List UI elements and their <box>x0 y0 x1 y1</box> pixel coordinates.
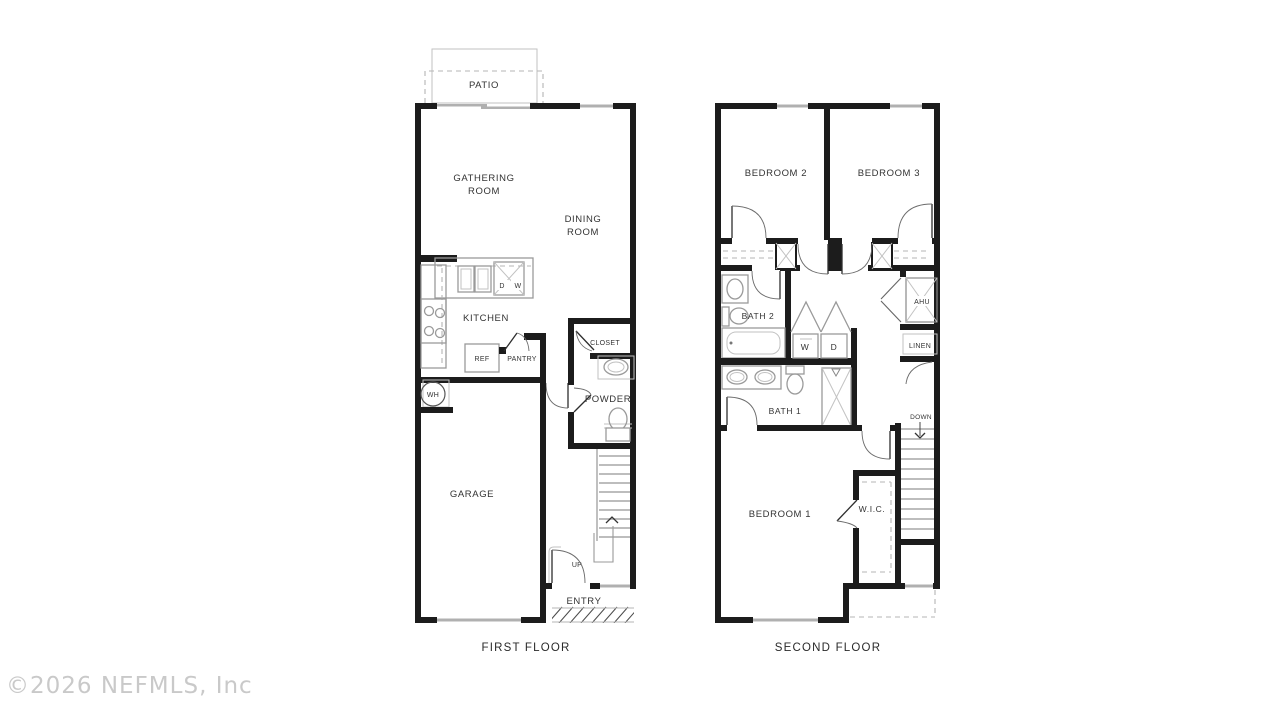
floorplan-image: PATIO GATHERING ROOM DINING ROOM <box>0 0 1280 720</box>
bath1-area: BATH 1 <box>721 366 901 431</box>
pantry: PANTRY <box>499 333 546 363</box>
refrigerator: REF <box>465 344 499 372</box>
patio-label: PATIO <box>469 80 499 91</box>
first-floor-plan: PATIO GATHERING ROOM DINING ROOM <box>415 49 639 654</box>
entry-sidelite-window <box>600 585 630 588</box>
dining-room-label: DINING <box>565 214 602 225</box>
powder-label: POWDER <box>585 394 631 405</box>
bedroom2-label: BEDROOM 2 <box>745 168 807 179</box>
powder-room-area: CLOSET POWDER <box>568 318 636 449</box>
second-floor-plan: BEDROOM 2 BEDROOM 3 <box>715 103 940 654</box>
bath1-label: BATH 1 <box>769 406 802 416</box>
floorplan-page: PATIO GATHERING ROOM DINING ROOM <box>0 0 1280 720</box>
kitchen-area: D W KITCHEN REF PANTRY <box>415 255 574 408</box>
dining-room-label-2: ROOM <box>567 227 599 238</box>
bedroom2-window <box>777 105 808 108</box>
kitchen-sink <box>458 266 474 292</box>
powder-toilet <box>604 408 632 441</box>
ref-label: REF <box>475 356 490 363</box>
gathering-room-label: GATHERING <box>453 173 514 184</box>
watermark: ©2026 NEFMLS, Inc <box>6 673 253 699</box>
garage-label: GARAGE <box>450 489 494 500</box>
garage-door <box>437 619 521 622</box>
hall-door-arc <box>906 362 932 384</box>
bath1-toilet <box>786 366 804 394</box>
bedroom2-closet <box>723 206 796 269</box>
powder-sink <box>598 356 634 379</box>
ahu-doors <box>881 278 901 322</box>
wic-door <box>837 500 857 521</box>
down-label: DOWN <box>910 414 932 421</box>
bath2-label: BATH 2 <box>742 311 775 321</box>
dishwasher: D W <box>494 262 524 295</box>
walk-in-closet: W.I.C. <box>837 470 901 589</box>
bedroom3-window <box>890 105 922 108</box>
wh-label: WH <box>427 392 439 399</box>
patio-area: PATIO <box>425 49 543 103</box>
roof-below-outline <box>850 590 935 617</box>
ahu-label: AHU <box>914 299 930 306</box>
bath1-double-sink <box>722 366 781 389</box>
gathering-room-label-2: ROOM <box>468 186 500 197</box>
first-floor-title: FIRST FLOOR <box>481 642 570 654</box>
ahu-closet: AHU <box>881 265 940 330</box>
bedroom3-closet <box>872 204 932 269</box>
wic-label: W.I.C. <box>859 504 886 514</box>
entry-label: ENTRY <box>566 596 601 607</box>
sliding-door <box>437 104 487 107</box>
hall-closet-strip <box>721 204 940 274</box>
bedroom1-label: BEDROOM 1 <box>749 509 811 520</box>
window <box>580 105 613 108</box>
porch-hatch <box>548 607 639 623</box>
bedroom3-label: BEDROOM 3 <box>858 168 920 179</box>
stair-hall-window <box>905 585 933 588</box>
linen-label: LINEN <box>909 343 931 350</box>
second-floor-title: SECOND FLOOR <box>775 642 881 654</box>
first-floor-walls <box>415 103 636 623</box>
dishwasher-w-label: W <box>515 283 522 290</box>
laundry-bifold-door <box>791 302 821 332</box>
water-heater: WH <box>421 380 453 413</box>
bedroom1-window <box>753 619 818 622</box>
kitchen-label: KITCHEN <box>463 313 509 324</box>
closet-label: CLOSET <box>590 340 620 347</box>
dryer-label: D <box>831 342 838 352</box>
bath2-toilet <box>722 307 729 326</box>
dishwasher-d-label: D <box>499 283 504 290</box>
garage-area: GARAGE <box>450 333 546 617</box>
bedroom1-area: BEDROOM 1 W.I.C. <box>749 431 901 589</box>
shower <box>822 368 851 426</box>
stairs-down: DOWN <box>895 414 940 589</box>
stairs-up: UP <box>572 449 630 569</box>
washer-label: W <box>801 342 810 352</box>
pantry-label: PANTRY <box>507 356 537 363</box>
bathtub <box>722 328 785 358</box>
